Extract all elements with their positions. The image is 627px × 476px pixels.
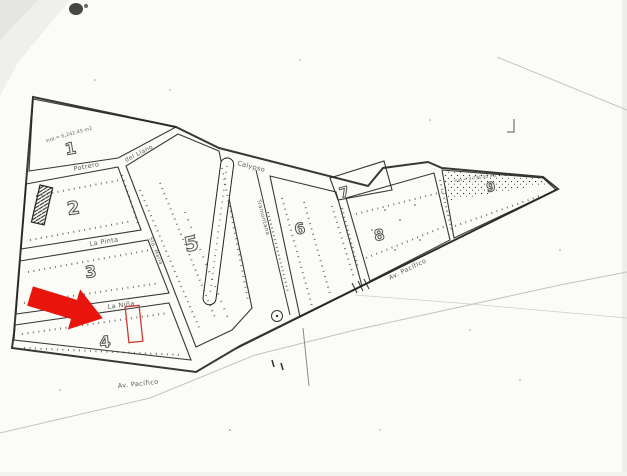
- block-4-number: 4: [98, 332, 111, 352]
- plat-map-drawing: 1 2 3 4 5 6 7 8 9 sup.= 6,242.45 m2 sup.…: [0, 0, 627, 476]
- scanned-plat-map-page: 1 2 3 4 5 6 7 8 9 sup.= 6,242.45 m2 sup.…: [0, 0, 627, 476]
- ink-smudge: [69, 3, 83, 15]
